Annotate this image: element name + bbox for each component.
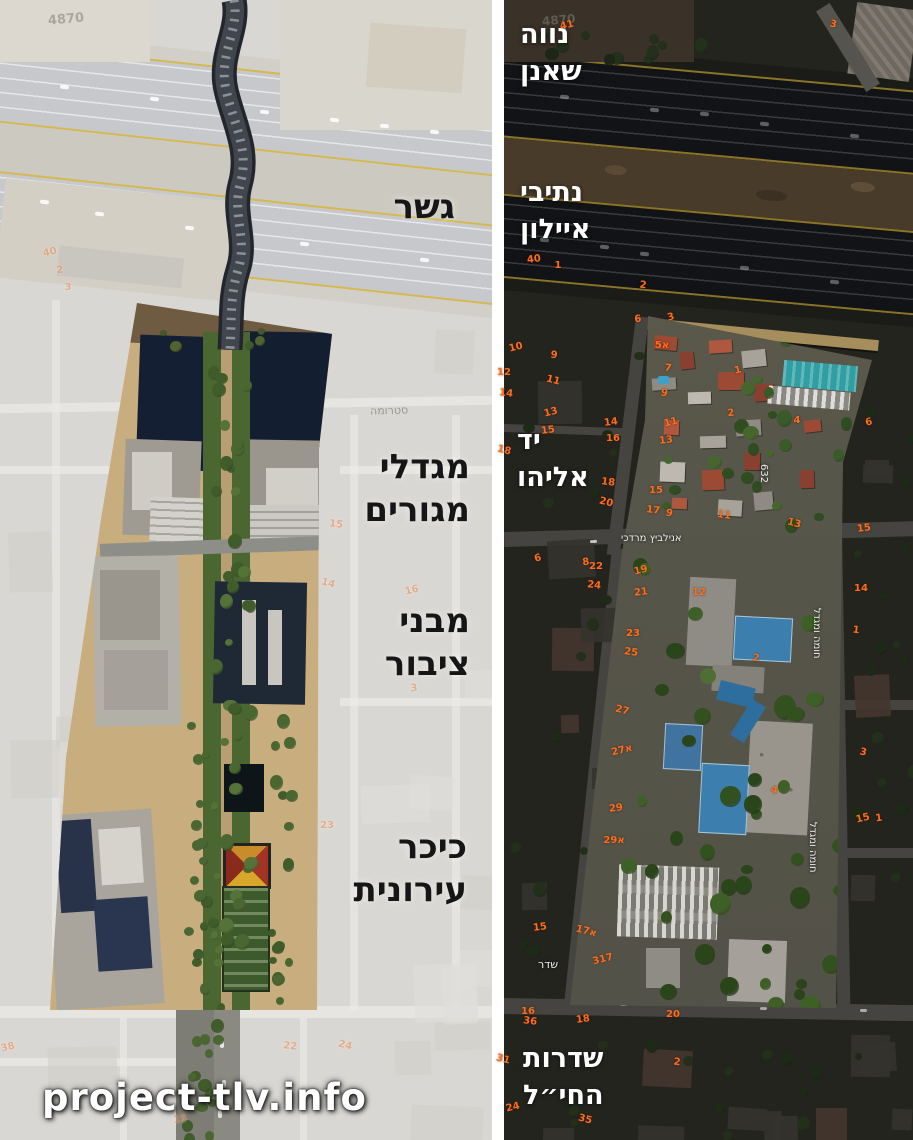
tree-canopy <box>609 449 617 458</box>
dark-building <box>543 1128 574 1140</box>
tree-canopy <box>200 1034 211 1045</box>
car-on-road <box>330 118 339 123</box>
tree-canopy <box>791 853 804 866</box>
faded-building <box>409 775 454 811</box>
tree-canopy <box>872 732 884 744</box>
house-roof <box>672 498 688 510</box>
tree-canopy <box>182 1120 193 1132</box>
left-highlighted-extension-strip <box>176 1010 240 1140</box>
dark-building <box>547 539 597 580</box>
dark-building <box>727 1107 768 1132</box>
house-roof <box>688 392 711 404</box>
dark-building <box>854 674 891 718</box>
tree-canopy <box>604 54 615 66</box>
tree-canopy <box>658 41 667 50</box>
tree-canopy <box>205 1131 214 1140</box>
tree-canopy <box>841 417 852 430</box>
tree-canopy <box>200 983 211 994</box>
label-netivei-ayalon: נתיבי איילון <box>520 174 590 248</box>
dark-building <box>637 1125 684 1140</box>
dark-building <box>892 1109 913 1131</box>
tree-canopy <box>865 409 876 420</box>
tree-canopy <box>193 754 204 764</box>
faded-building <box>434 1021 490 1050</box>
car-on-road <box>830 280 839 285</box>
label-bridge: גשר <box>394 186 455 229</box>
car-on-road <box>430 130 439 135</box>
tree-canopy <box>543 498 555 509</box>
dark-building <box>772 1116 799 1140</box>
tree-canopy <box>779 439 792 452</box>
tree-canopy <box>634 352 644 361</box>
tree-canopy <box>866 665 876 676</box>
tree-canopy <box>720 786 740 807</box>
tree-canopy <box>220 420 229 430</box>
car-on-road <box>600 245 609 250</box>
faded-building <box>8 532 53 593</box>
tree-canopy <box>666 643 684 659</box>
tree-canopy <box>209 659 223 675</box>
tree-canopy <box>587 618 599 631</box>
car-on-road <box>560 95 569 100</box>
tree-canopy <box>714 1103 726 1113</box>
tree-canopy <box>271 741 279 751</box>
tree-canopy <box>895 804 908 816</box>
watermark-site-url: project-tlv.info <box>42 1076 367 1119</box>
tree-canopy <box>284 737 296 750</box>
faded-building <box>395 1041 432 1076</box>
tree-canopy <box>787 707 805 722</box>
tree-canopy <box>806 692 824 707</box>
block-number-label: 632 <box>758 464 769 483</box>
pedestrian-bridge <box>200 0 272 350</box>
tree-canopy <box>639 563 651 576</box>
tree-canopy <box>694 708 711 725</box>
parking-lot <box>617 864 719 939</box>
tree-canopy <box>220 456 233 470</box>
tree-canopy <box>216 373 228 384</box>
tree-canopy <box>797 1117 810 1132</box>
tree-canopy <box>901 658 909 665</box>
tree-canopy <box>214 959 223 968</box>
tree-canopy <box>511 842 522 854</box>
tree-canopy <box>893 642 901 649</box>
faded-building <box>434 329 475 375</box>
tree-canopy <box>244 857 259 870</box>
tree-canopy <box>850 808 863 821</box>
car-on-road <box>40 200 49 205</box>
tree-canopy <box>748 773 763 787</box>
tree-canopy <box>814 513 823 522</box>
faded-street <box>340 698 492 706</box>
tree-canopy <box>211 486 221 497</box>
tree-canopy <box>778 780 790 794</box>
tree-canopy <box>220 594 233 609</box>
tree-canopy <box>735 876 752 895</box>
tree-canopy <box>785 519 798 533</box>
house-roof <box>679 351 695 369</box>
house-roof <box>700 436 726 449</box>
map-grid-ref: 4870 <box>47 10 84 28</box>
tree-canopy <box>233 898 246 911</box>
tree-canopy <box>723 1131 734 1140</box>
car-on-road <box>860 1009 867 1012</box>
tree-canopy <box>229 783 242 795</box>
public-building <box>100 570 160 640</box>
car-on-road <box>185 226 194 231</box>
dark-street <box>843 848 913 858</box>
tree-canopy <box>877 778 888 788</box>
tree-canopy <box>527 946 540 958</box>
construction-faded <box>366 23 466 94</box>
tree-canopy <box>552 732 563 742</box>
tree-canopy <box>637 796 647 808</box>
dark-building <box>642 1049 692 1088</box>
tree-canopy <box>724 1067 734 1076</box>
tree-canopy <box>286 790 297 802</box>
tree-canopy <box>196 838 207 849</box>
label-residential-towers: מגדלי מגורים <box>364 446 470 532</box>
dark-building <box>851 875 875 901</box>
tree-canopy <box>722 468 733 479</box>
car-on-road <box>760 1007 767 1010</box>
right-panel-current-aerial: 4870 נווה שאנן נתיבי איילון יד אליהו שדר… <box>504 0 913 1140</box>
tree-canopy <box>764 387 774 399</box>
street-label-anielewicz: אנילביץ מרדכי <box>621 533 682 544</box>
car-on-road <box>95 212 104 217</box>
grass-circle <box>700 668 716 684</box>
tree-canopy <box>660 984 677 1000</box>
tree-canopy <box>760 978 771 990</box>
solar-roof-detail <box>268 610 282 685</box>
tree-canopy <box>741 472 754 484</box>
house-roof <box>664 420 679 436</box>
tree-canopy <box>891 873 901 883</box>
house-roof <box>653 335 678 352</box>
tree-canopy <box>570 1119 579 1127</box>
left-panel-project-aerial: 4870 סטרומה גשר מגדלי מגורים מבני ציבור … <box>0 0 492 1140</box>
car-on-road <box>420 258 429 263</box>
tree-canopy <box>741 865 752 874</box>
tree-canopy <box>741 381 756 397</box>
tree-canopy <box>190 876 199 885</box>
tree-canopy <box>766 450 774 458</box>
street-label-homa-umigdal: חומה ומגדל <box>807 822 818 873</box>
house-roof <box>702 470 725 491</box>
tree-canopy <box>903 545 911 553</box>
car-on-road <box>650 108 659 113</box>
tree-canopy <box>184 927 194 936</box>
basketball-court <box>733 616 793 663</box>
tree-canopy <box>533 882 547 897</box>
tree-canopy <box>670 831 683 847</box>
label-yad-eliyahu: יד אליהו <box>517 422 589 496</box>
tree-canopy <box>221 932 234 947</box>
tree-canopy <box>187 722 196 730</box>
tree-canopy <box>160 330 167 336</box>
tree-canopy <box>646 1039 658 1053</box>
tree-canopy <box>669 485 681 495</box>
faded-building <box>410 1104 483 1140</box>
faded-street <box>350 415 358 1010</box>
tree-canopy <box>753 376 763 384</box>
tree-canopy <box>907 434 913 444</box>
tree-canopy <box>193 949 204 960</box>
car-on-road <box>640 252 649 257</box>
tree-canopy <box>662 502 670 509</box>
tree-canopy <box>796 979 807 989</box>
car-on-road <box>150 97 159 102</box>
tree-canopy <box>700 844 715 861</box>
tree-canopy <box>744 795 762 813</box>
car-on-road <box>700 112 709 117</box>
tree-canopy <box>655 684 669 696</box>
school-building <box>686 577 737 667</box>
tree-canopy <box>772 501 782 512</box>
dark-building <box>538 381 582 425</box>
house-roof <box>709 339 733 353</box>
label-sderot-hahayil: שדרות החי״ל <box>523 1040 604 1114</box>
car-on-road <box>380 124 389 129</box>
tree-canopy <box>208 918 220 928</box>
tree-canopy <box>212 383 225 397</box>
tree-canopy <box>794 989 805 1000</box>
tree-canopy <box>811 1068 821 1079</box>
house-roof <box>741 349 767 368</box>
tree-canopy <box>621 859 637 873</box>
tree-canopy <box>601 595 612 605</box>
house-roof <box>800 470 815 488</box>
tree-canopy <box>854 550 862 558</box>
tree-canopy <box>602 430 613 440</box>
tree-canopy <box>590 487 600 496</box>
tree-canopy <box>833 449 844 462</box>
tree-canopy <box>683 1056 695 1065</box>
street-label-partial-sderot: שדר <box>538 958 558 971</box>
tree-canopy <box>720 977 739 996</box>
label-urban-square: כיכר עירונית <box>354 826 467 912</box>
car-on-road <box>740 266 749 271</box>
tree-canopy <box>245 600 256 613</box>
tree-canopy <box>220 834 235 851</box>
tree-canopy <box>194 890 207 902</box>
dark-building <box>561 715 580 734</box>
dark-building <box>816 1108 847 1140</box>
car-on-road <box>760 122 769 127</box>
tree-canopy <box>285 958 293 967</box>
tree-canopy <box>777 410 792 427</box>
house-roof <box>660 462 686 482</box>
tree-canopy <box>581 31 589 40</box>
tree-canopy <box>695 944 716 964</box>
house-roof <box>718 372 744 390</box>
tree-canopy <box>284 822 294 831</box>
building-roof-detail <box>98 827 144 886</box>
basketball-court <box>663 723 703 771</box>
tree-canopy <box>283 858 295 872</box>
car-on-road <box>850 134 859 139</box>
tree-canopy <box>743 426 759 440</box>
tree-canopy <box>645 864 659 878</box>
tree-canopy <box>748 443 759 456</box>
solar-array solar <box>94 896 153 972</box>
tree-canopy <box>268 929 275 936</box>
tree-canopy <box>799 1088 807 1096</box>
tree-canopy <box>782 1052 793 1064</box>
swimming-pool <box>658 376 669 384</box>
street-label-struma: סטרומה <box>370 403 409 417</box>
dark-building <box>863 465 894 484</box>
tree-canopy <box>902 477 911 486</box>
tree-canopy <box>876 642 887 654</box>
tree-canopy <box>710 893 731 916</box>
tree-canopy <box>232 729 243 741</box>
car-on-road <box>60 85 69 90</box>
tree-canopy <box>688 607 703 621</box>
house-roof <box>803 419 822 433</box>
tree-canopy <box>219 918 233 934</box>
tree-canopy <box>908 765 913 779</box>
school-building <box>646 948 680 988</box>
sand-patch <box>0 0 150 62</box>
tree-canopy <box>695 38 708 52</box>
label-public-buildings: מבני ציבור <box>385 600 470 686</box>
public-building <box>104 650 168 710</box>
panel-divider <box>492 0 504 1140</box>
street-label-homa-umigdal: חומה ומגדל <box>811 608 822 659</box>
house-roof <box>753 491 774 510</box>
tree-canopy <box>277 714 290 729</box>
tree-canopy <box>762 1050 774 1060</box>
car-on-road <box>590 540 597 543</box>
tree-canopy <box>707 456 722 469</box>
house-roof <box>717 499 742 517</box>
car-on-road <box>300 242 309 247</box>
tree-canopy <box>211 931 219 939</box>
faded-building <box>460 950 492 987</box>
tree-canopy <box>184 1133 195 1140</box>
tree-canopy <box>790 887 811 909</box>
tree-canopy <box>205 1049 214 1058</box>
tree-canopy <box>880 593 889 601</box>
aerial-comparison-image: 4870 סטרומה גשר מגדלי מגורים מבני ציבור … <box>0 0 913 1140</box>
label-neve-shaanan: נווה שאנן <box>520 16 582 90</box>
tree-canopy <box>191 820 201 830</box>
tree-canopy <box>228 703 242 715</box>
